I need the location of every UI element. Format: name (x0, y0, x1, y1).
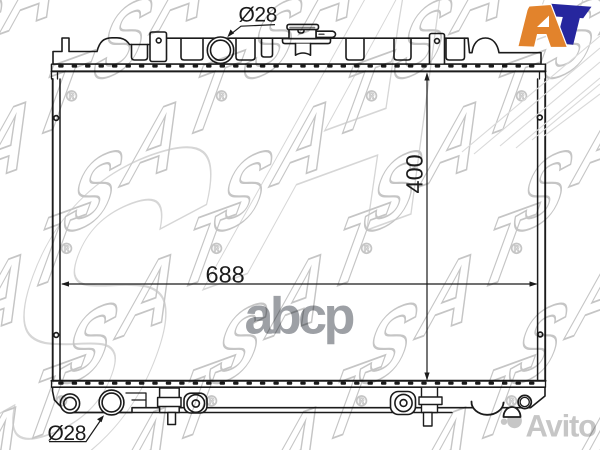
svg-text:688: 688 (206, 262, 245, 288)
svg-text:Ø28: Ø28 (239, 3, 278, 26)
svg-text:400: 400 (402, 154, 428, 193)
